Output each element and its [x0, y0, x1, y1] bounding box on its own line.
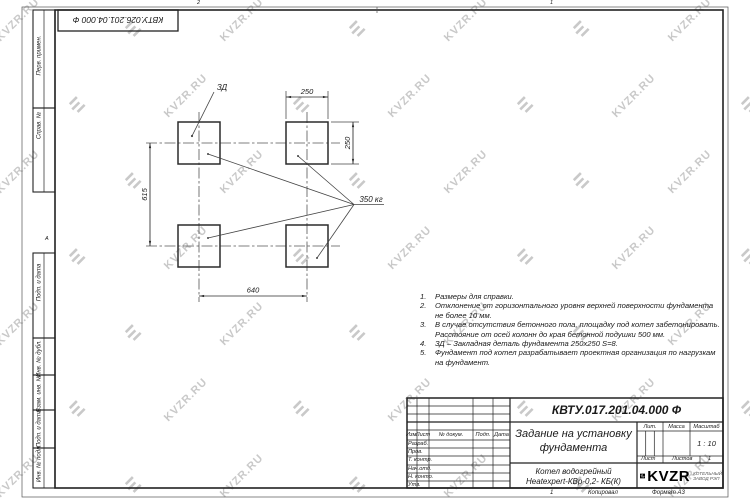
document-title-line2: фундамента: [510, 440, 637, 456]
sheet-label: Лист: [641, 456, 655, 462]
row-prov: Пров.: [408, 449, 423, 455]
note-number: 3.: [420, 320, 435, 339]
leader-lines: [192, 92, 384, 258]
notes-list: 1.Размеры для справки. 2.Отклонение от г…: [420, 292, 720, 367]
row-n-kontr: Н. контр.: [408, 474, 433, 480]
kvzr-logo-sub-line2: ЗАВОД РЭП: [693, 476, 719, 481]
lit-header: Лит.: [637, 423, 663, 431]
sheet-content: 250 250 615 640 ЗД 350 кг: [0, 0, 750, 500]
row-nach-otd: Нач.отд.: [408, 466, 432, 472]
zone-number-1: 1: [550, 0, 553, 6]
header-list: Лист: [417, 431, 429, 439]
note-text: ЗД – Закладная деталь фундамента 250х250…: [435, 339, 720, 348]
leader-dots: [191, 135, 318, 259]
zone-number-2: 2: [197, 0, 200, 6]
strip-label-perv-primen: Перв. примен.: [35, 21, 44, 91]
kvzr-logo-text: KVZR: [647, 468, 690, 485]
kvzr-logo-icon: [640, 466, 645, 486]
row-t-kontr: Т. контр.: [408, 457, 432, 463]
sheets-value: 1: [708, 456, 711, 462]
kvzr-logo: KVZR КОТЕЛЬНЫЙ ЗАВОД РЭП: [640, 466, 722, 486]
kvzr-logo-subtext: КОТЕЛЬНЫЙ ЗАВОД РЭП: [693, 471, 722, 481]
top-stamp-designation: КВТУ.026.201.04.000 Ф: [58, 10, 178, 31]
strip-label-podp-i-data-1: Подп. и дата: [35, 248, 44, 318]
header-podp: Подп.: [473, 431, 493, 439]
foundation-pads: [178, 122, 328, 267]
drawing-sheet: KVZR.RUKVZR.RUKVZR.RUKVZR.RUKVZR.RUKVZR.…: [0, 0, 750, 500]
extension-lines: [286, 91, 359, 164]
note-number: 4.: [420, 339, 435, 348]
dim-text-top: 250: [300, 87, 314, 96]
product-name-line2: Heatexpert-КВр-0,2- КБ(К): [510, 476, 637, 486]
scale-value: 1 : 10: [690, 436, 723, 450]
row-utv: Утв.: [408, 482, 421, 488]
note-item: 1.Размеры для справки.: [420, 292, 720, 301]
footer-kopiroval: Копировал: [588, 490, 618, 496]
leader-load-1: [208, 154, 354, 205]
note-number: 1.: [420, 292, 435, 301]
leader-zd: [192, 92, 214, 136]
note-number: 5.: [420, 348, 435, 367]
dimension-lines: [150, 97, 353, 296]
note-item: 5.Фундамент под котел разрабатывает прое…: [420, 348, 720, 367]
note-text: Фундамент под котел разрабатывает проект…: [435, 348, 720, 367]
header-no-dokum: № докум.: [429, 431, 473, 439]
row-razrab: Разраб.: [408, 441, 428, 447]
zone-letter-a: А: [45, 236, 49, 242]
mass-header: Масса: [663, 423, 690, 431]
sheets-label: Листов: [672, 456, 692, 462]
centerlines: [146, 112, 340, 302]
note-text: В случае отсутствия бетонного пола, площ…: [435, 320, 720, 339]
dim-text-left: 615: [140, 187, 149, 200]
product-name-line1: Котел водогрейный: [510, 466, 637, 476]
note-item: 2.Отклонение от горизонтального уровня в…: [420, 301, 720, 320]
header-data: Дата: [493, 431, 510, 439]
outer-border: [22, 7, 728, 497]
leader-load-4: [317, 205, 354, 259]
note-number: 2.: [420, 301, 435, 320]
strip-label-inv-no-podl: Инв. № подл.: [35, 429, 44, 499]
load-label: 350 кг: [359, 195, 382, 204]
note-item: 4.ЗД – Закладная деталь фундамента 250х2…: [420, 339, 720, 348]
note-text: Отклонение от горизонтального уровня вер…: [435, 301, 720, 320]
note-text: Размеры для справки.: [435, 292, 720, 301]
strip-label-sprav-no: Справ. №: [35, 91, 44, 161]
footer-format: Формат А3: [652, 490, 685, 496]
footer-number: 1: [550, 490, 553, 496]
title-block-designation: КВТУ.017.201.04.000 Ф: [510, 398, 723, 422]
detail-callout-label: ЗД: [217, 83, 228, 92]
dim-text-right: 250: [343, 136, 352, 150]
note-item: 3.В случае отсутствия бетонного пола, пл…: [420, 320, 720, 339]
scale-header: Масштаб: [690, 423, 723, 431]
leader-load-3: [208, 205, 354, 239]
dim-text-bottom: 640: [247, 286, 260, 295]
